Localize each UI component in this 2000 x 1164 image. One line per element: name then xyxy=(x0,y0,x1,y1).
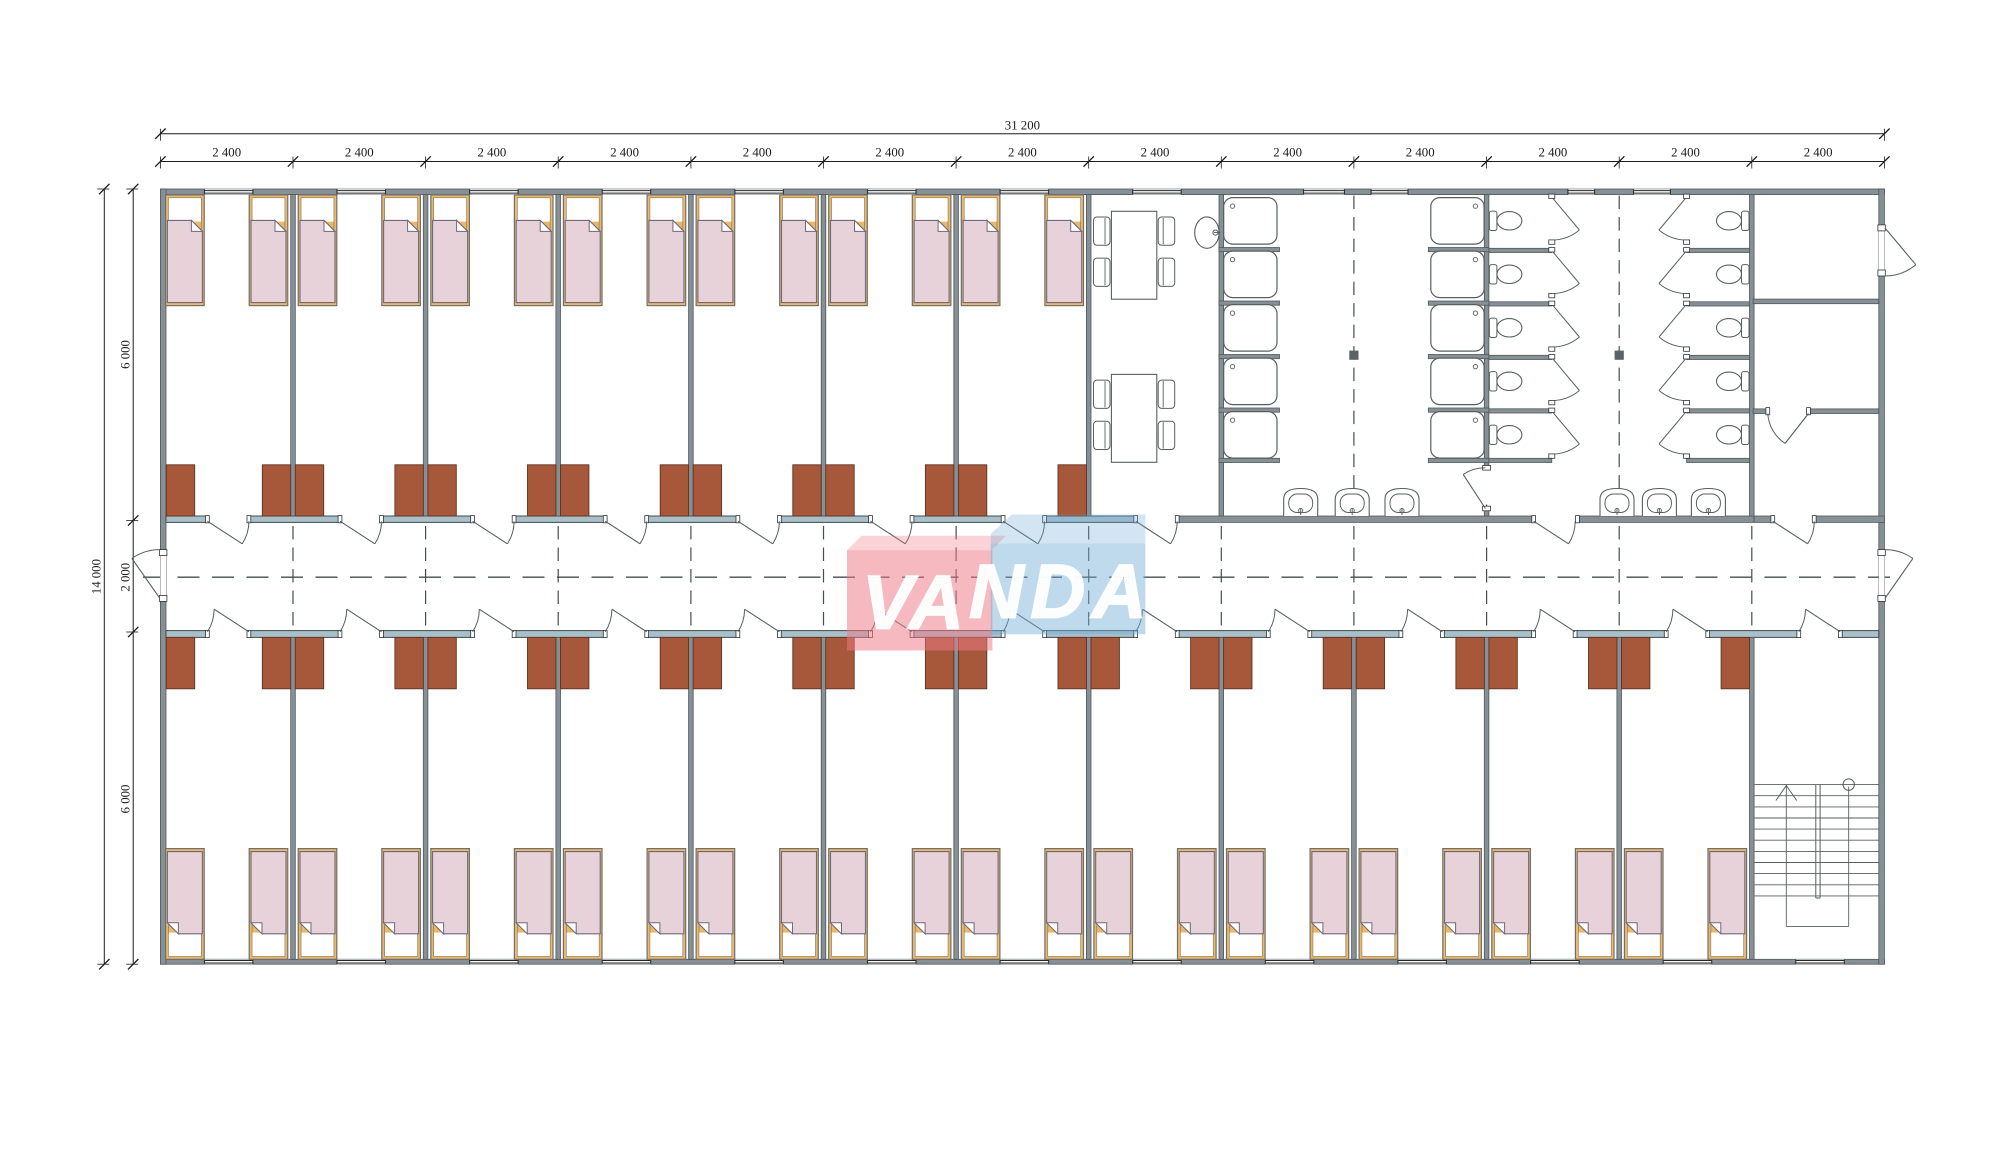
svg-text:2 400: 2 400 xyxy=(1008,146,1037,160)
svg-text:2 400: 2 400 xyxy=(212,146,241,160)
svg-text:6 000: 6 000 xyxy=(119,340,133,369)
svg-text:6 000: 6 000 xyxy=(119,785,133,814)
svg-text:2 000: 2 000 xyxy=(119,563,133,592)
svg-text:2 400: 2 400 xyxy=(875,146,904,160)
svg-text:2 400: 2 400 xyxy=(345,146,374,160)
svg-text:2 400: 2 400 xyxy=(610,146,639,160)
svg-text:14 000: 14 000 xyxy=(90,559,104,594)
svg-text:2 400: 2 400 xyxy=(1141,146,1170,160)
svg-text:2 400: 2 400 xyxy=(1539,146,1568,160)
svg-text:2 400: 2 400 xyxy=(1406,146,1435,160)
svg-text:2 400: 2 400 xyxy=(1671,146,1700,160)
svg-text:2 400: 2 400 xyxy=(478,146,507,160)
svg-text:NDA: NDA xyxy=(969,549,1153,634)
svg-text:2 400: 2 400 xyxy=(1804,146,1833,160)
svg-text:31 200: 31 200 xyxy=(1005,119,1040,133)
svg-text:2 400: 2 400 xyxy=(743,146,772,160)
svg-text:2 400: 2 400 xyxy=(1273,146,1302,160)
svg-text:VA: VA xyxy=(862,560,966,645)
